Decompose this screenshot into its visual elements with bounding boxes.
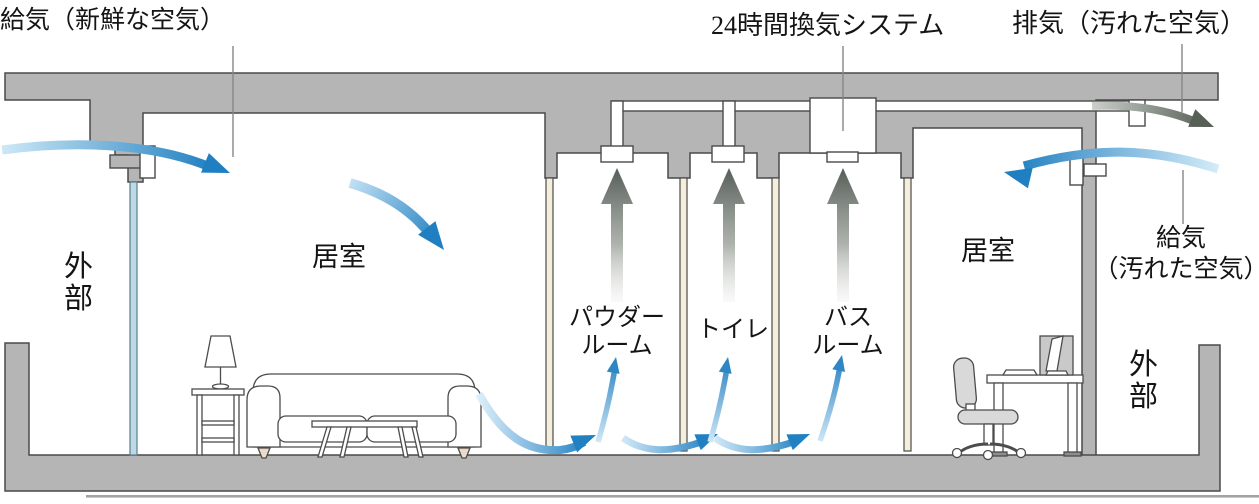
floor-lamp (205, 336, 236, 389)
underdoor-arrow-toilet (623, 426, 721, 450)
label-supply-dirty-air: 給気 （汚れた空気） (1083, 224, 1259, 285)
wall-powder-left (546, 178, 553, 451)
side-table (192, 389, 244, 455)
powder-vent (601, 146, 633, 162)
powder-duct-stub (611, 101, 623, 148)
toilet-vent (712, 146, 744, 162)
label-bath-room: バス ルーム (787, 305, 909, 361)
right-supply-duct (1084, 164, 1106, 176)
rising-air-arrow-powder (598, 356, 622, 442)
sofa (247, 374, 481, 458)
label-supply-fresh-air: 給気（新鮮な空気） (0, 7, 225, 36)
label-toilet: トイレ (697, 317, 769, 345)
rising-air-arrow-toilet (710, 356, 734, 442)
exhaust-up-arrow-bath (827, 168, 859, 302)
label-exhaust-dirty-air: 排気（汚れた空気） (1012, 9, 1246, 39)
wall-powder-toilet (680, 178, 687, 451)
label-exterior-right: 外部 (1129, 349, 1160, 414)
label-ventilation-system: 24時間換気システム (711, 11, 944, 41)
label-living-room-left: 居室 (312, 242, 366, 273)
diagram-canvas (0, 0, 1259, 504)
wall-toilet-bath (772, 178, 779, 451)
label-exterior-left: 外部 (64, 251, 95, 316)
keyboard (1003, 370, 1037, 375)
exhaust-up-arrow-toilet (713, 168, 745, 302)
ground-line (86, 495, 1259, 498)
right-supply-vent (1070, 156, 1083, 185)
left-supply-duct (110, 155, 142, 168)
supply-air-arrow-right (1002, 152, 1218, 188)
label-powder-room: パウダー ルーム (556, 305, 678, 361)
bath-vent-grille (827, 152, 858, 162)
rising-air-arrow-bath (820, 354, 848, 441)
underdoor-arrow-bath (715, 426, 813, 450)
wall-exterior-left (130, 182, 137, 455)
ventilation-diagram: 給気（新鮮な空気） 24時間換気システム 排気（汚れた空気） 給気 （汚れた空気… (0, 0, 1259, 504)
underdoor-arrow-powder (479, 394, 599, 452)
toilet-duct-stub (723, 101, 735, 148)
label-living-room-right: 居室 (961, 236, 1015, 267)
exhaust-up-arrow-powder (601, 168, 633, 302)
computer-monitor (1040, 336, 1073, 375)
exhaust-up-arrows (601, 168, 859, 302)
